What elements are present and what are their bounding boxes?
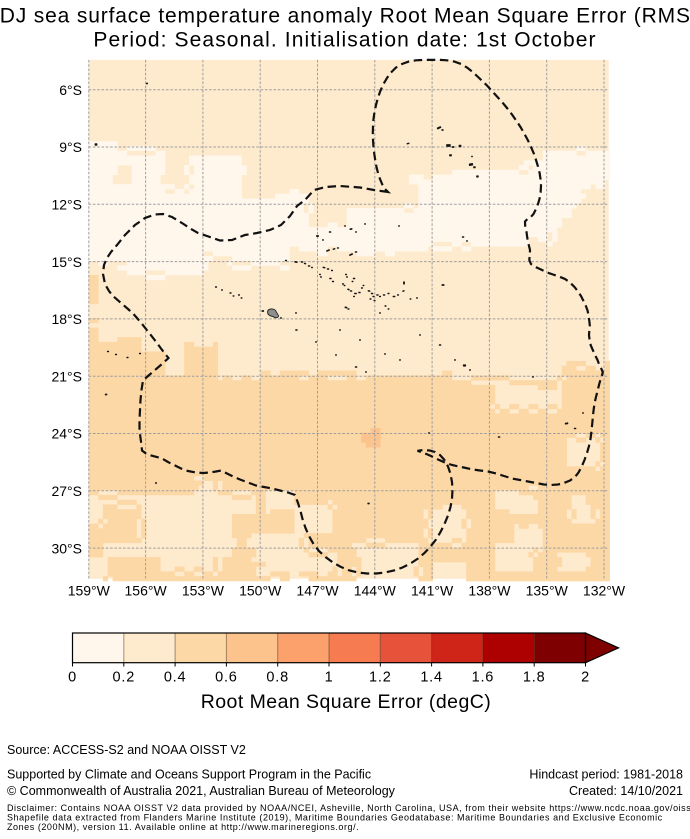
svg-text:Disclaimer: Contains NOAA OISS: Disclaimer: Contains NOAA OISST V2 data … (7, 803, 690, 813)
svg-text:6°S: 6°S (59, 82, 82, 98)
svg-text:0.6: 0.6 (215, 670, 238, 686)
svg-text:159°W: 159°W (68, 583, 111, 599)
svg-text:1.2: 1.2 (369, 670, 392, 686)
svg-text:Hindcast period: 1981-2018: Hindcast period: 1981-2018 (529, 768, 683, 782)
svg-text:1.8: 1.8 (523, 670, 546, 686)
svg-text:0.8: 0.8 (266, 670, 289, 686)
svg-text:147°W: 147°W (296, 583, 339, 599)
svg-text:Shapefile data extracted from: Shapefile data extracted from Flanders M… (7, 813, 663, 823)
svg-text:Zones (200NM), version 11. Ava: Zones (200NM), version 11. Available onl… (7, 822, 359, 832)
svg-text:0.4: 0.4 (164, 670, 187, 686)
svg-text:© Commonwealth of Australia 20: © Commonwealth of Australia 2021, Austra… (7, 784, 396, 798)
svg-text:153°W: 153°W (182, 583, 225, 599)
svg-text:9°S: 9°S (59, 139, 82, 155)
svg-text:1.4: 1.4 (420, 670, 443, 686)
svg-text:150°W: 150°W (239, 583, 282, 599)
svg-text:0: 0 (68, 670, 77, 686)
svg-text:132°W: 132°W (583, 583, 626, 599)
svg-text:27°S: 27°S (51, 483, 82, 499)
svg-text:NDJ sea surface temperature an: NDJ sea surface temperature anomaly Root… (0, 5, 690, 28)
svg-text:1: 1 (325, 670, 334, 686)
svg-text:2: 2 (581, 670, 590, 686)
svg-text:12°S: 12°S (51, 197, 82, 213)
svg-text:Root Mean Square Error (degC): Root Mean Square Error (degC) (201, 691, 492, 713)
svg-text:135°W: 135°W (526, 583, 569, 599)
svg-text:30°S: 30°S (51, 540, 82, 556)
svg-text:138°W: 138°W (468, 583, 511, 599)
svg-text:24°S: 24°S (51, 426, 82, 442)
svg-text:21°S: 21°S (51, 368, 82, 384)
svg-text:1.6: 1.6 (472, 670, 495, 686)
svg-text:156°W: 156°W (125, 583, 168, 599)
svg-text:0.2: 0.2 (113, 670, 136, 686)
svg-text:15°S: 15°S (51, 254, 82, 270)
svg-text:18°S: 18°S (51, 311, 82, 327)
svg-text:Supported by Climate and Ocean: Supported by Climate and Oceans Support … (7, 768, 371, 782)
svg-text:Source: ACCESS-S2 and NOAA OIS: Source: ACCESS-S2 and NOAA OISST V2 (7, 743, 246, 757)
svg-text:144°W: 144°W (354, 583, 397, 599)
svg-text:Created: 14/10/2021: Created: 14/10/2021 (569, 784, 683, 798)
svg-text:Period: Seasonal. Initialisati: Period: Seasonal. Initialisation date: 1… (93, 29, 596, 52)
svg-text:141°W: 141°W (411, 583, 454, 599)
